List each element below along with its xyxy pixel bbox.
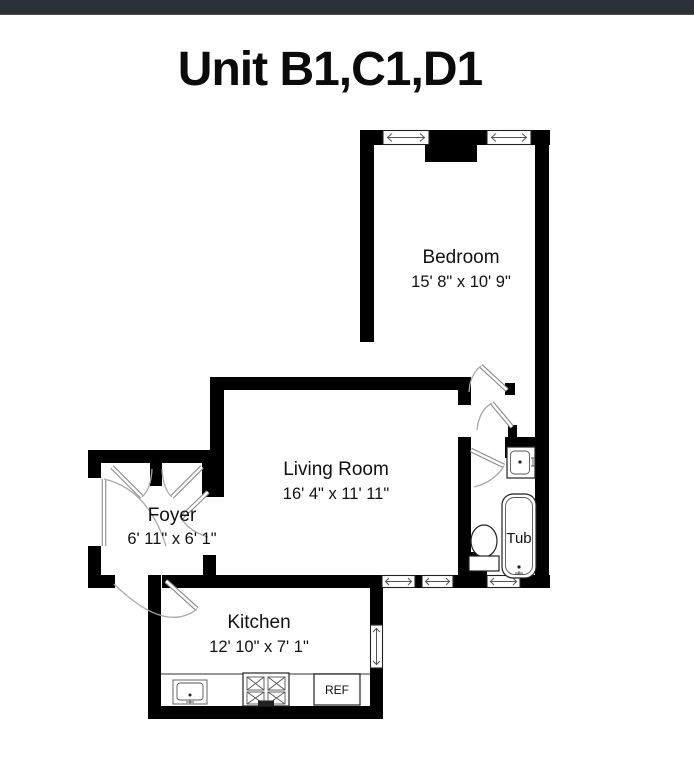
foyer-left-wall-upper — [88, 450, 101, 478]
bottom-wall-seg2 — [162, 575, 382, 588]
tub-label: Tub — [506, 530, 531, 547]
kitchen-name: Kitchen — [227, 612, 290, 633]
kitchen-right-wall-upper — [370, 588, 383, 625]
bedroom-window-2 — [487, 131, 531, 145]
bathroom-door — [471, 450, 504, 487]
foyer-closet-door-right — [162, 467, 202, 497]
living-left-wall — [210, 390, 224, 497]
foyer-top-wall — [88, 450, 210, 463]
kitchen-window — [371, 625, 383, 668]
living-window-1 — [382, 576, 415, 588]
windows — [371, 131, 532, 669]
refrigerator-icon: REF — [314, 674, 360, 705]
refrigerator-label: REF — [325, 683, 349, 697]
bedroom-name: Bedroom — [422, 247, 499, 268]
kitchen-sink-icon — [173, 680, 207, 704]
foyer-name: Foyer — [148, 505, 197, 526]
bedroom-hall-door — [469, 366, 507, 392]
floor-plan-page: Unit B1,C1,D1 — [0, 0, 694, 768]
top-chrome-bar — [0, 0, 694, 15]
living-window-2 — [422, 576, 453, 588]
stove-icon — [243, 673, 289, 706]
bedroom-dimensions: 15' 8" x 10' 9" — [411, 273, 511, 291]
passage-stub-wall — [203, 555, 216, 576]
bottom-wall-seg1 — [88, 575, 115, 588]
walls — [88, 130, 550, 719]
hall-closet-door — [477, 403, 512, 430]
bedroom-left-wall — [360, 145, 374, 342]
bath-sink-icon — [507, 447, 535, 478]
right-exterior-wall — [535, 130, 549, 588]
plan-title: Unit B1,C1,D1 — [0, 42, 660, 97]
living-top-wall — [210, 377, 471, 390]
bedroom-chimney-bump — [425, 145, 477, 162]
living-room-dimensions: 16' 4" x 11' 11" — [283, 485, 390, 503]
foyer-dimensions: 6' 11" x 6' 1" — [127, 530, 216, 548]
living-room-name: Living Room — [283, 459, 389, 480]
kitchen-right-wall-lower — [370, 668, 383, 719]
floor-plan-drawing: REF Bedroom 15' 8" x 10' 9" Living Room … — [0, 0, 694, 768]
kitchen-bottom-wall — [148, 706, 383, 719]
stove-handle — [258, 701, 274, 706]
bedroom-window-1 — [383, 131, 429, 145]
toilet-icon — [469, 525, 499, 571]
hall-stub-wall — [458, 390, 471, 405]
kitchen-dimensions: 12' 10" x 7' 1" — [209, 638, 309, 656]
kitchen-left-wall — [148, 575, 161, 719]
